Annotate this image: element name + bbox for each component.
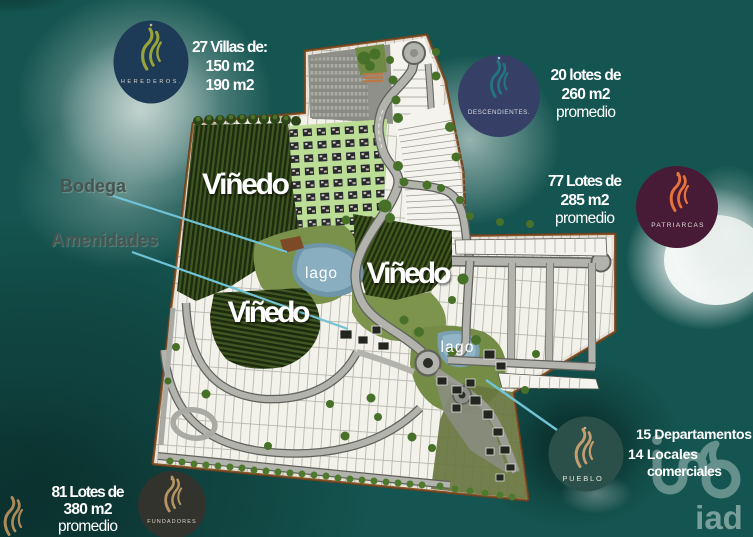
svg-text:77 Lotes de: 77 Lotes de: [548, 173, 622, 190]
svg-text:380 m2: 380 m2: [64, 501, 113, 518]
svg-text:260 m2: 260 m2: [562, 86, 611, 103]
svg-text:promedio: promedio: [556, 104, 616, 121]
svg-text:comerciales: comerciales: [647, 463, 722, 479]
svg-text:promedio: promedio: [58, 518, 118, 535]
svg-text:lago: lago: [305, 265, 337, 282]
svg-text:14 Locales: 14 Locales: [628, 446, 698, 462]
svg-text:150 m2: 150 m2: [206, 58, 255, 75]
svg-text:PATRIARCAS: PATRIARCAS: [651, 222, 705, 229]
svg-text:15 Departamentos: 15 Departamentos: [636, 426, 752, 442]
svg-text:FUNDADORES: FUNDADORES: [147, 519, 197, 525]
svg-text:promedio: promedio: [555, 210, 615, 227]
svg-text:PUEBLO: PUEBLO: [562, 474, 603, 483]
svg-text:27 Villas de:: 27 Villas de:: [192, 39, 268, 56]
svg-text:Viñedo: Viñedo: [367, 257, 452, 290]
svg-text:iad: iad: [695, 499, 743, 536]
svg-text:190 m2: 190 m2: [206, 77, 255, 94]
svg-text:81 Lotes de: 81 Lotes de: [52, 484, 125, 501]
svg-text:Viñedo: Viñedo: [202, 168, 290, 201]
svg-text:DESCENDIENTES.: DESCENDIENTES.: [468, 109, 530, 116]
svg-text:lago: lago: [441, 339, 474, 356]
svg-text:Viñedo: Viñedo: [228, 296, 311, 329]
svg-text:20 lotes de: 20 lotes de: [551, 67, 622, 84]
svg-text:HEREDEROS.: HEREDEROS.: [121, 79, 183, 85]
svg-text:285 m2: 285 m2: [561, 192, 610, 209]
svg-text:Bodega: Bodega: [60, 176, 127, 196]
svg-text:Amenidades: Amenidades: [51, 230, 158, 250]
